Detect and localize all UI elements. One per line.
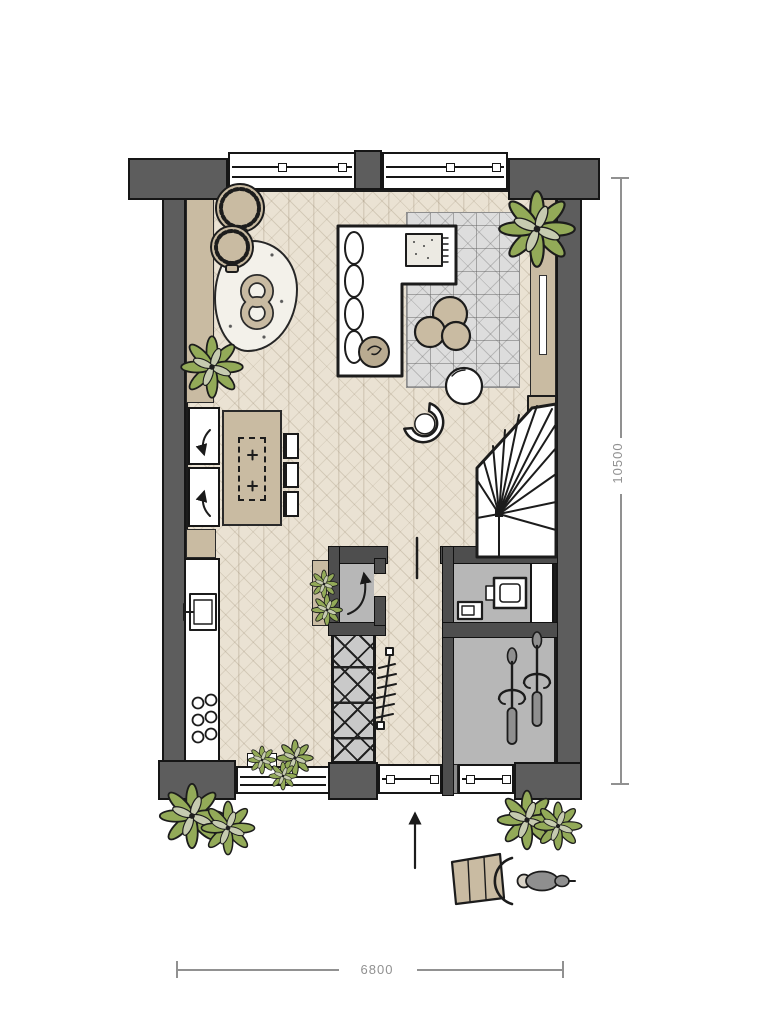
sink [184, 594, 216, 630]
dimension-tick [562, 961, 564, 978]
dimension-line-vertical [620, 494, 622, 784]
rattan-chair [211, 226, 253, 272]
plant [534, 802, 582, 850]
dimension-label-vertical: 10500 [610, 433, 626, 493]
coat-rack [375, 648, 396, 729]
hob [193, 695, 217, 743]
appliance-door-swing-icon [203, 492, 210, 516]
knot-cushion [245, 279, 269, 325]
stairs [477, 396, 556, 557]
plant [269, 762, 297, 790]
bicycle [524, 632, 550, 726]
bicycle [499, 648, 525, 744]
dimension-label-horizontal: 6800 [339, 962, 415, 978]
floor-plan: 10500 6800 [0, 0, 768, 1024]
pet-cushion [359, 337, 389, 367]
dimension-tick [611, 783, 629, 785]
armchair [403, 402, 452, 451]
plant [499, 191, 575, 267]
dimension-line-vertical [620, 178, 622, 438]
door-swing-icon [348, 574, 365, 614]
ball-chair [446, 368, 482, 404]
table-plus-marks [248, 451, 257, 491]
dimension-tick [611, 177, 629, 179]
toilet [486, 578, 526, 608]
appliance-door-swing-icon [203, 430, 210, 454]
plan-drawing-layer [0, 0, 768, 1024]
plant [310, 570, 338, 598]
dimension-line-horizontal [177, 969, 339, 971]
cargo-bike [452, 854, 575, 904]
hand-basin [458, 602, 482, 619]
plant [312, 595, 343, 626]
dimension-tick [176, 961, 178, 978]
dimension-line-horizontal [417, 969, 563, 971]
plant [201, 801, 254, 854]
throw-blanket [406, 234, 448, 266]
poufs [415, 297, 470, 350]
plant [248, 746, 276, 774]
plant [181, 336, 243, 398]
